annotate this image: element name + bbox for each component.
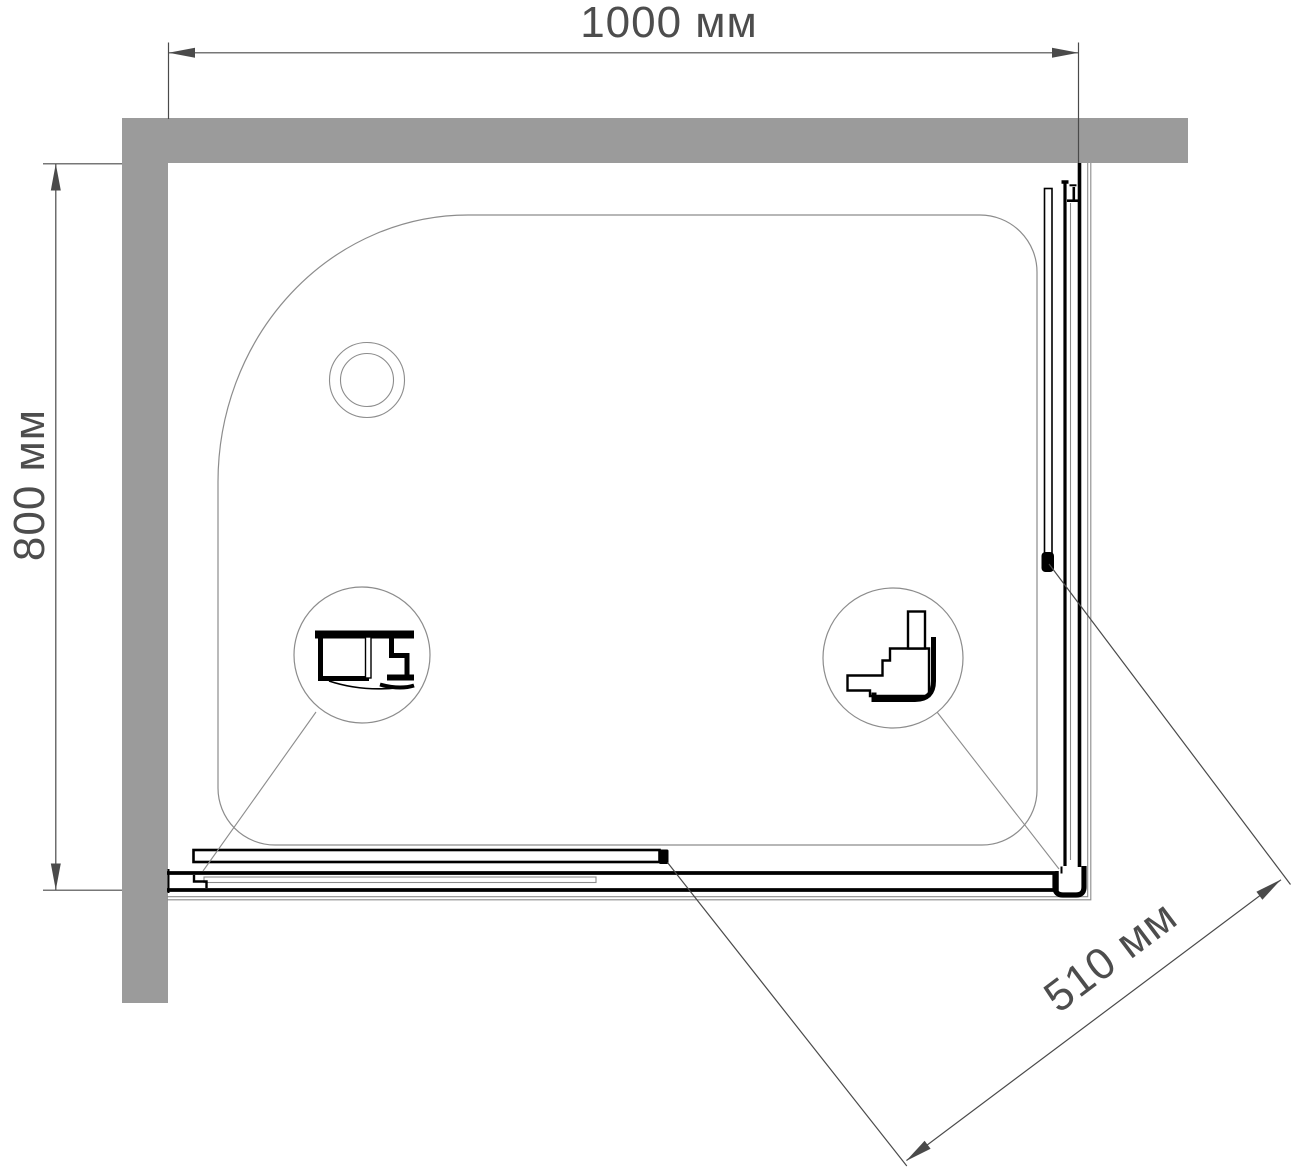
opening-arrow-bottom-left [906, 1141, 931, 1161]
width-arrow-left [169, 48, 196, 58]
width-arrow-right [1052, 48, 1079, 58]
opening-extension-line-left [668, 863, 907, 1167]
sliding-door-panel [194, 850, 660, 862]
detail-circle-left [294, 587, 430, 723]
opening-dimension-line [907, 880, 1282, 1161]
profile-glass-edge [366, 637, 372, 678]
profile-top-bar [315, 631, 414, 639]
tray-inner-outline [218, 215, 1037, 845]
bottom-fixed-glass-panel [204, 877, 596, 883]
technical-drawing-canvas: 1000 мм 800 мм 510 мм [0, 0, 1291, 1172]
side-panel-assembly [1042, 163, 1085, 895]
wall-top [122, 118, 1188, 163]
walls [122, 118, 1188, 1003]
depth-arrow-top [51, 164, 61, 191]
dimension-label-depth: 800 мм [8, 375, 52, 595]
drain-inner-circle [341, 354, 394, 407]
detail-left-leader-line [203, 712, 316, 871]
corner-connector [1055, 866, 1084, 895]
dimension-depth [43, 164, 122, 890]
tray-outer-edge-line-2 [167, 163, 1091, 900]
corner-vertical-finger [908, 612, 925, 649]
dimension-label-width: 1000 мм [559, 1, 779, 45]
detail-callout-left [203, 587, 430, 871]
depth-arrow-bottom [51, 864, 61, 891]
dimension-opening [668, 564, 1291, 1166]
opening-arrow-top-right [1256, 880, 1281, 900]
door-end-cap [659, 850, 669, 865]
wall-left [122, 118, 168, 1003]
shower-tray [167, 163, 1091, 900]
side-glass-panel [1045, 189, 1053, 556]
tray-outer-edge-line-1 [167, 163, 1088, 897]
opening-extension-line-right [1049, 564, 1291, 885]
sliding-door-assembly [167, 850, 1057, 894]
